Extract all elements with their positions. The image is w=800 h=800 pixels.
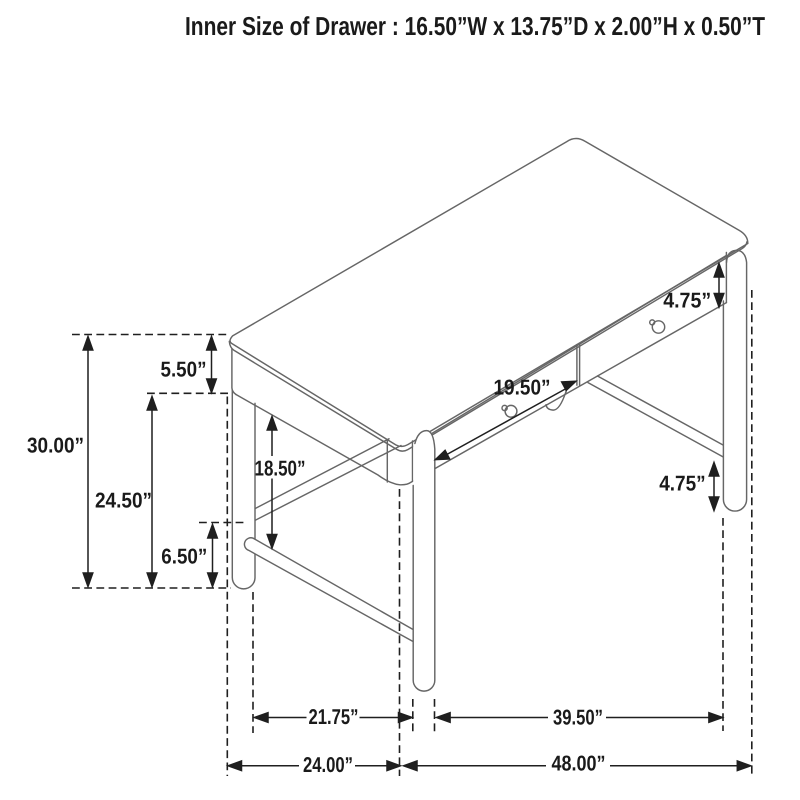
- svg-text:48.00”: 48.00”: [552, 752, 606, 776]
- svg-text:21.75”: 21.75”: [309, 705, 359, 729]
- svg-text:24.00”: 24.00”: [303, 753, 353, 777]
- svg-text:24.50”: 24.50”: [95, 489, 152, 513]
- svg-text:Inner Size of Drawer : 16.50”W: Inner Size of Drawer : 16.50”W x 13.75”D…: [185, 11, 765, 41]
- svg-text:4.75”: 4.75”: [663, 288, 711, 312]
- svg-text:30.00”: 30.00”: [27, 434, 84, 458]
- svg-text:4.75”: 4.75”: [659, 472, 706, 496]
- svg-text:5.50”: 5.50”: [161, 358, 207, 382]
- svg-text:6.50”: 6.50”: [161, 545, 207, 569]
- svg-text:19.50”: 19.50”: [494, 376, 551, 400]
- svg-text:39.50”: 39.50”: [553, 706, 603, 730]
- svg-text:18.50”: 18.50”: [255, 457, 306, 481]
